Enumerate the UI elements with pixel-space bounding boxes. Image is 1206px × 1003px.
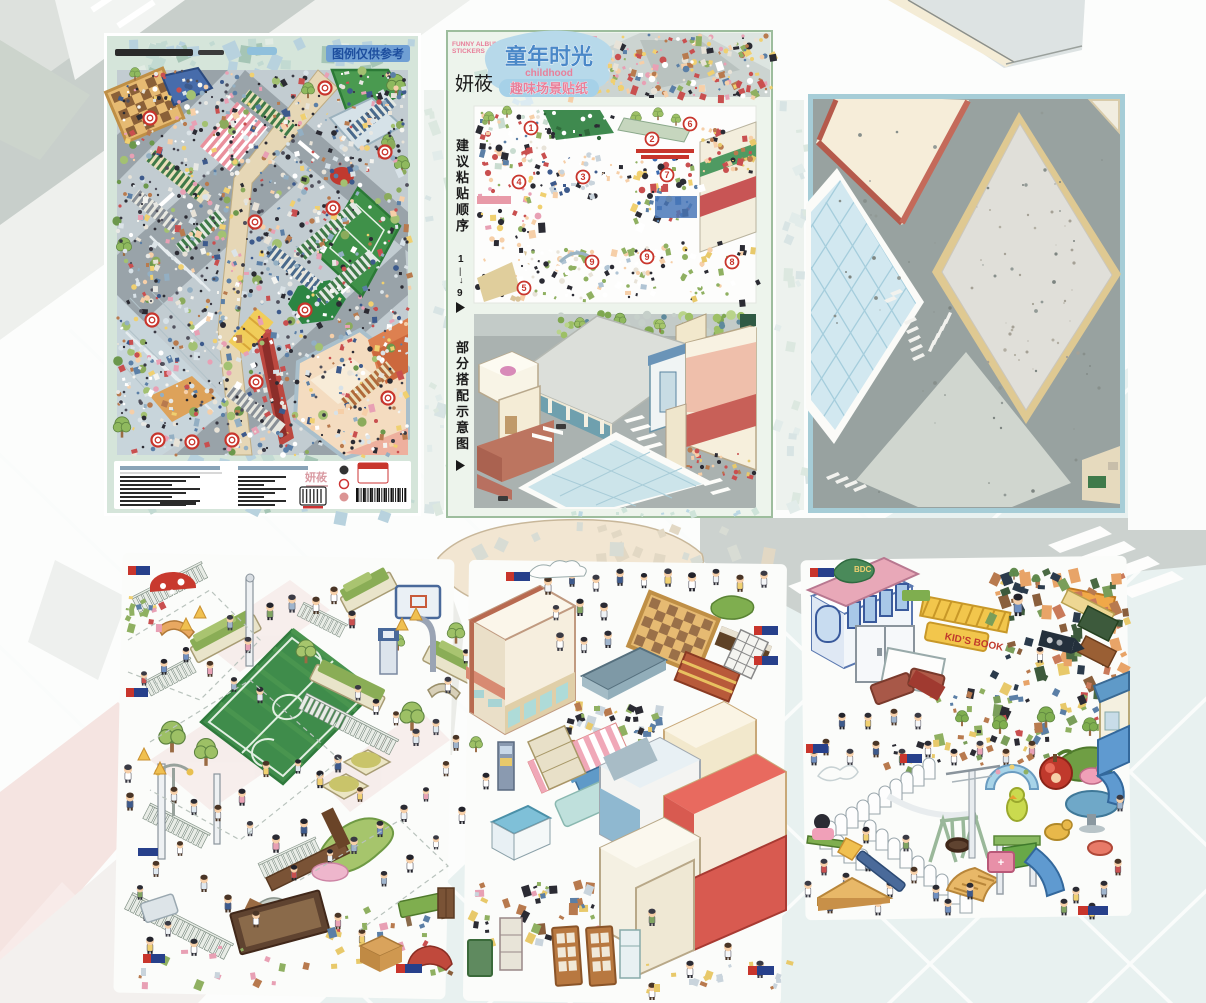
svg-text:贴: 贴: [456, 186, 469, 201]
svg-text:8: 8: [729, 257, 734, 267]
svg-text:图例仅供参考: 图例仅供参考: [332, 46, 404, 61]
svg-text:BDC: BDC: [854, 565, 872, 574]
svg-text:议: 议: [456, 154, 470, 169]
svg-text:↓: ↓: [459, 275, 464, 285]
svg-text:粘: 粘: [455, 170, 469, 185]
svg-text:+: +: [998, 857, 1004, 869]
svg-text:5: 5: [521, 283, 526, 293]
svg-text:1: 1: [528, 123, 533, 133]
svg-text:7: 7: [664, 170, 669, 180]
svg-text:妍莜: 妍莜: [455, 73, 493, 95]
svg-text:顺: 顺: [456, 202, 469, 217]
svg-text:1: 1: [458, 254, 464, 265]
svg-text:6: 6: [687, 119, 692, 129]
svg-text:childhood: childhood: [525, 68, 573, 79]
svg-text:2: 2: [649, 134, 654, 144]
svg-text:童年时光: 童年时光: [505, 44, 593, 69]
svg-text:意: 意: [456, 420, 469, 435]
svg-text:分: 分: [456, 356, 469, 371]
svg-text:部: 部: [456, 340, 469, 355]
svg-text:建: 建: [456, 138, 469, 153]
svg-text:示: 示: [456, 404, 469, 419]
svg-text:9: 9: [457, 288, 463, 299]
svg-text:趣味场景贴纸: 趣味场景贴纸: [509, 81, 588, 96]
svg-text:配: 配: [456, 388, 469, 403]
svg-text:妍莜: 妍莜: [305, 470, 328, 484]
svg-text:9: 9: [644, 252, 649, 262]
svg-text:图: 图: [456, 436, 469, 451]
svg-text:STICKERS: STICKERS: [452, 48, 486, 55]
svg-text:搭: 搭: [456, 372, 470, 387]
svg-text:3: 3: [580, 172, 585, 182]
svg-text:4: 4: [516, 177, 521, 187]
svg-text:序: 序: [456, 218, 469, 233]
svg-text:9: 9: [589, 257, 594, 267]
